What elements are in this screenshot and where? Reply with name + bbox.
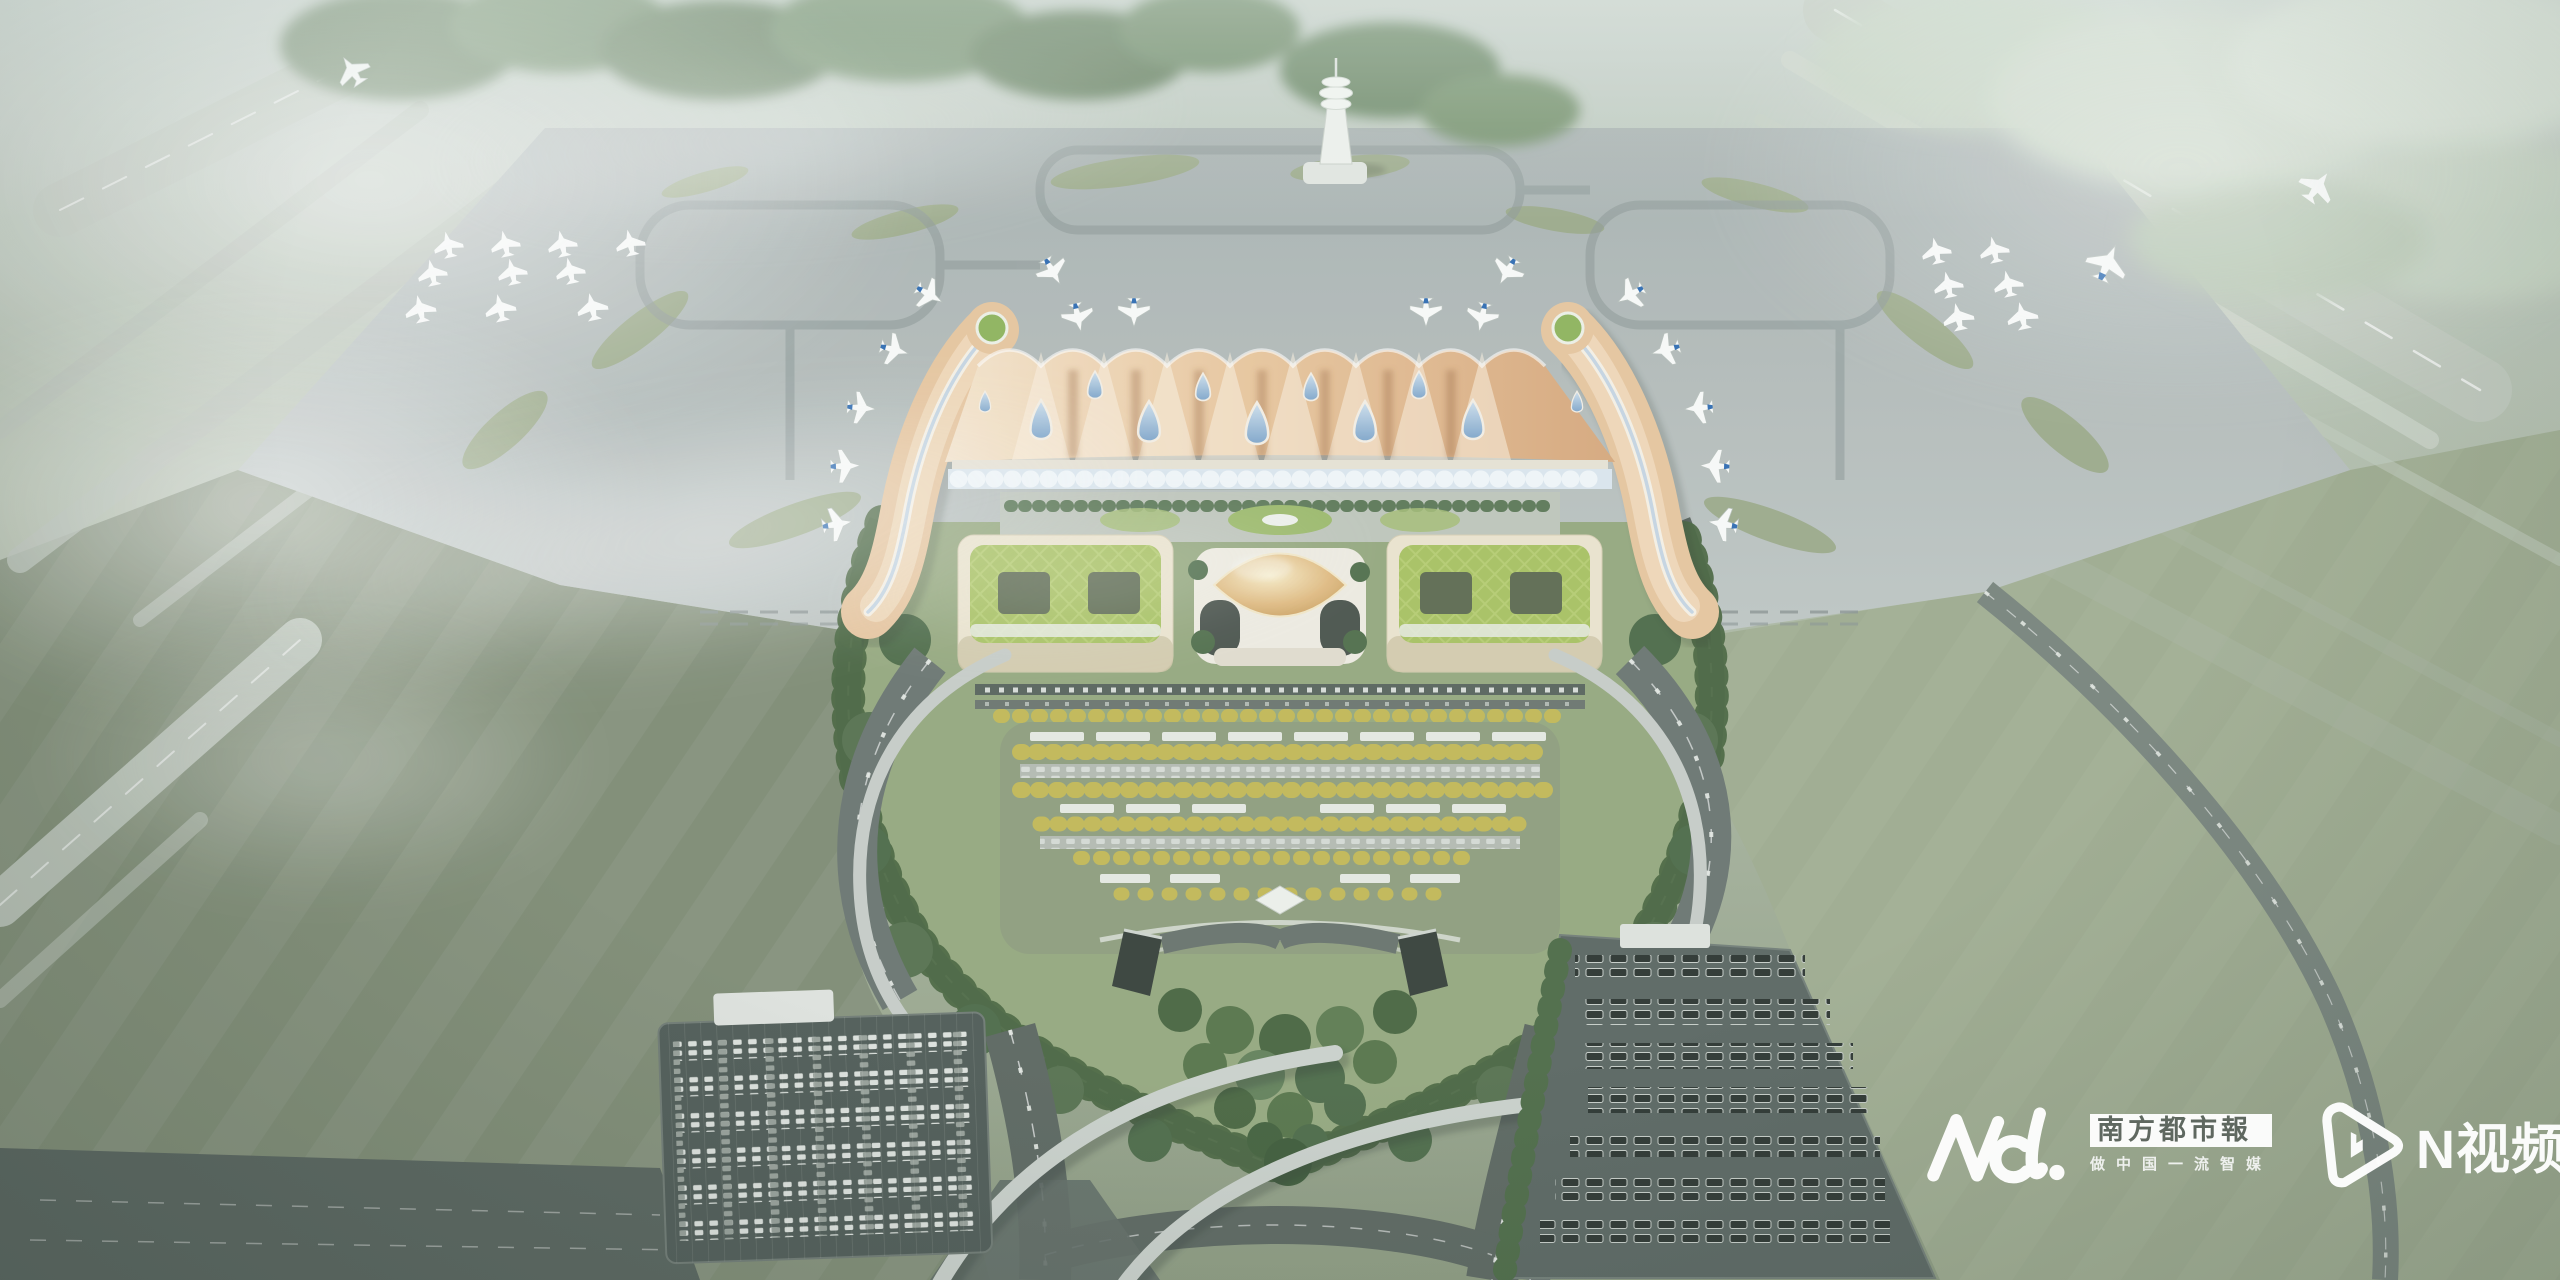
golden-dome-hall <box>1188 548 1370 666</box>
n-video-label: N视频 <box>2416 1105 2560 1184</box>
green-roof-building-right <box>1387 535 1602 672</box>
green-roof-building-left <box>958 535 1173 672</box>
main-terminal <box>945 350 1615 489</box>
car-park <box>657 984 992 1263</box>
newspaper-slogan: 做中国一流智媒 <box>2090 1153 2272 1174</box>
coach-park-building <box>1620 924 1710 948</box>
southern-metropolis-daily-lockup: Nd. 南方都市報 做中国一流智媒 <box>1922 1101 2272 1187</box>
landside-gardens <box>1000 722 1560 956</box>
nd-monogram-icon <box>1922 1101 2074 1187</box>
car-park-building <box>713 989 834 1025</box>
play-triangle-icon <box>2316 1098 2404 1190</box>
watermark-bar: Nd. 南方都市報 做中国一流智媒 N视频 <box>1922 1098 2560 1190</box>
airport-scene <box>0 0 2560 1280</box>
terminal-truss-band <box>952 460 1608 469</box>
n-video-lockup: N视频 <box>2316 1098 2560 1190</box>
newspaper-name: 南方都市報 <box>2090 1114 2272 1147</box>
aerial-render: Nd. 南方都市報 做中国一流智媒 N视频 <box>0 0 2560 1280</box>
